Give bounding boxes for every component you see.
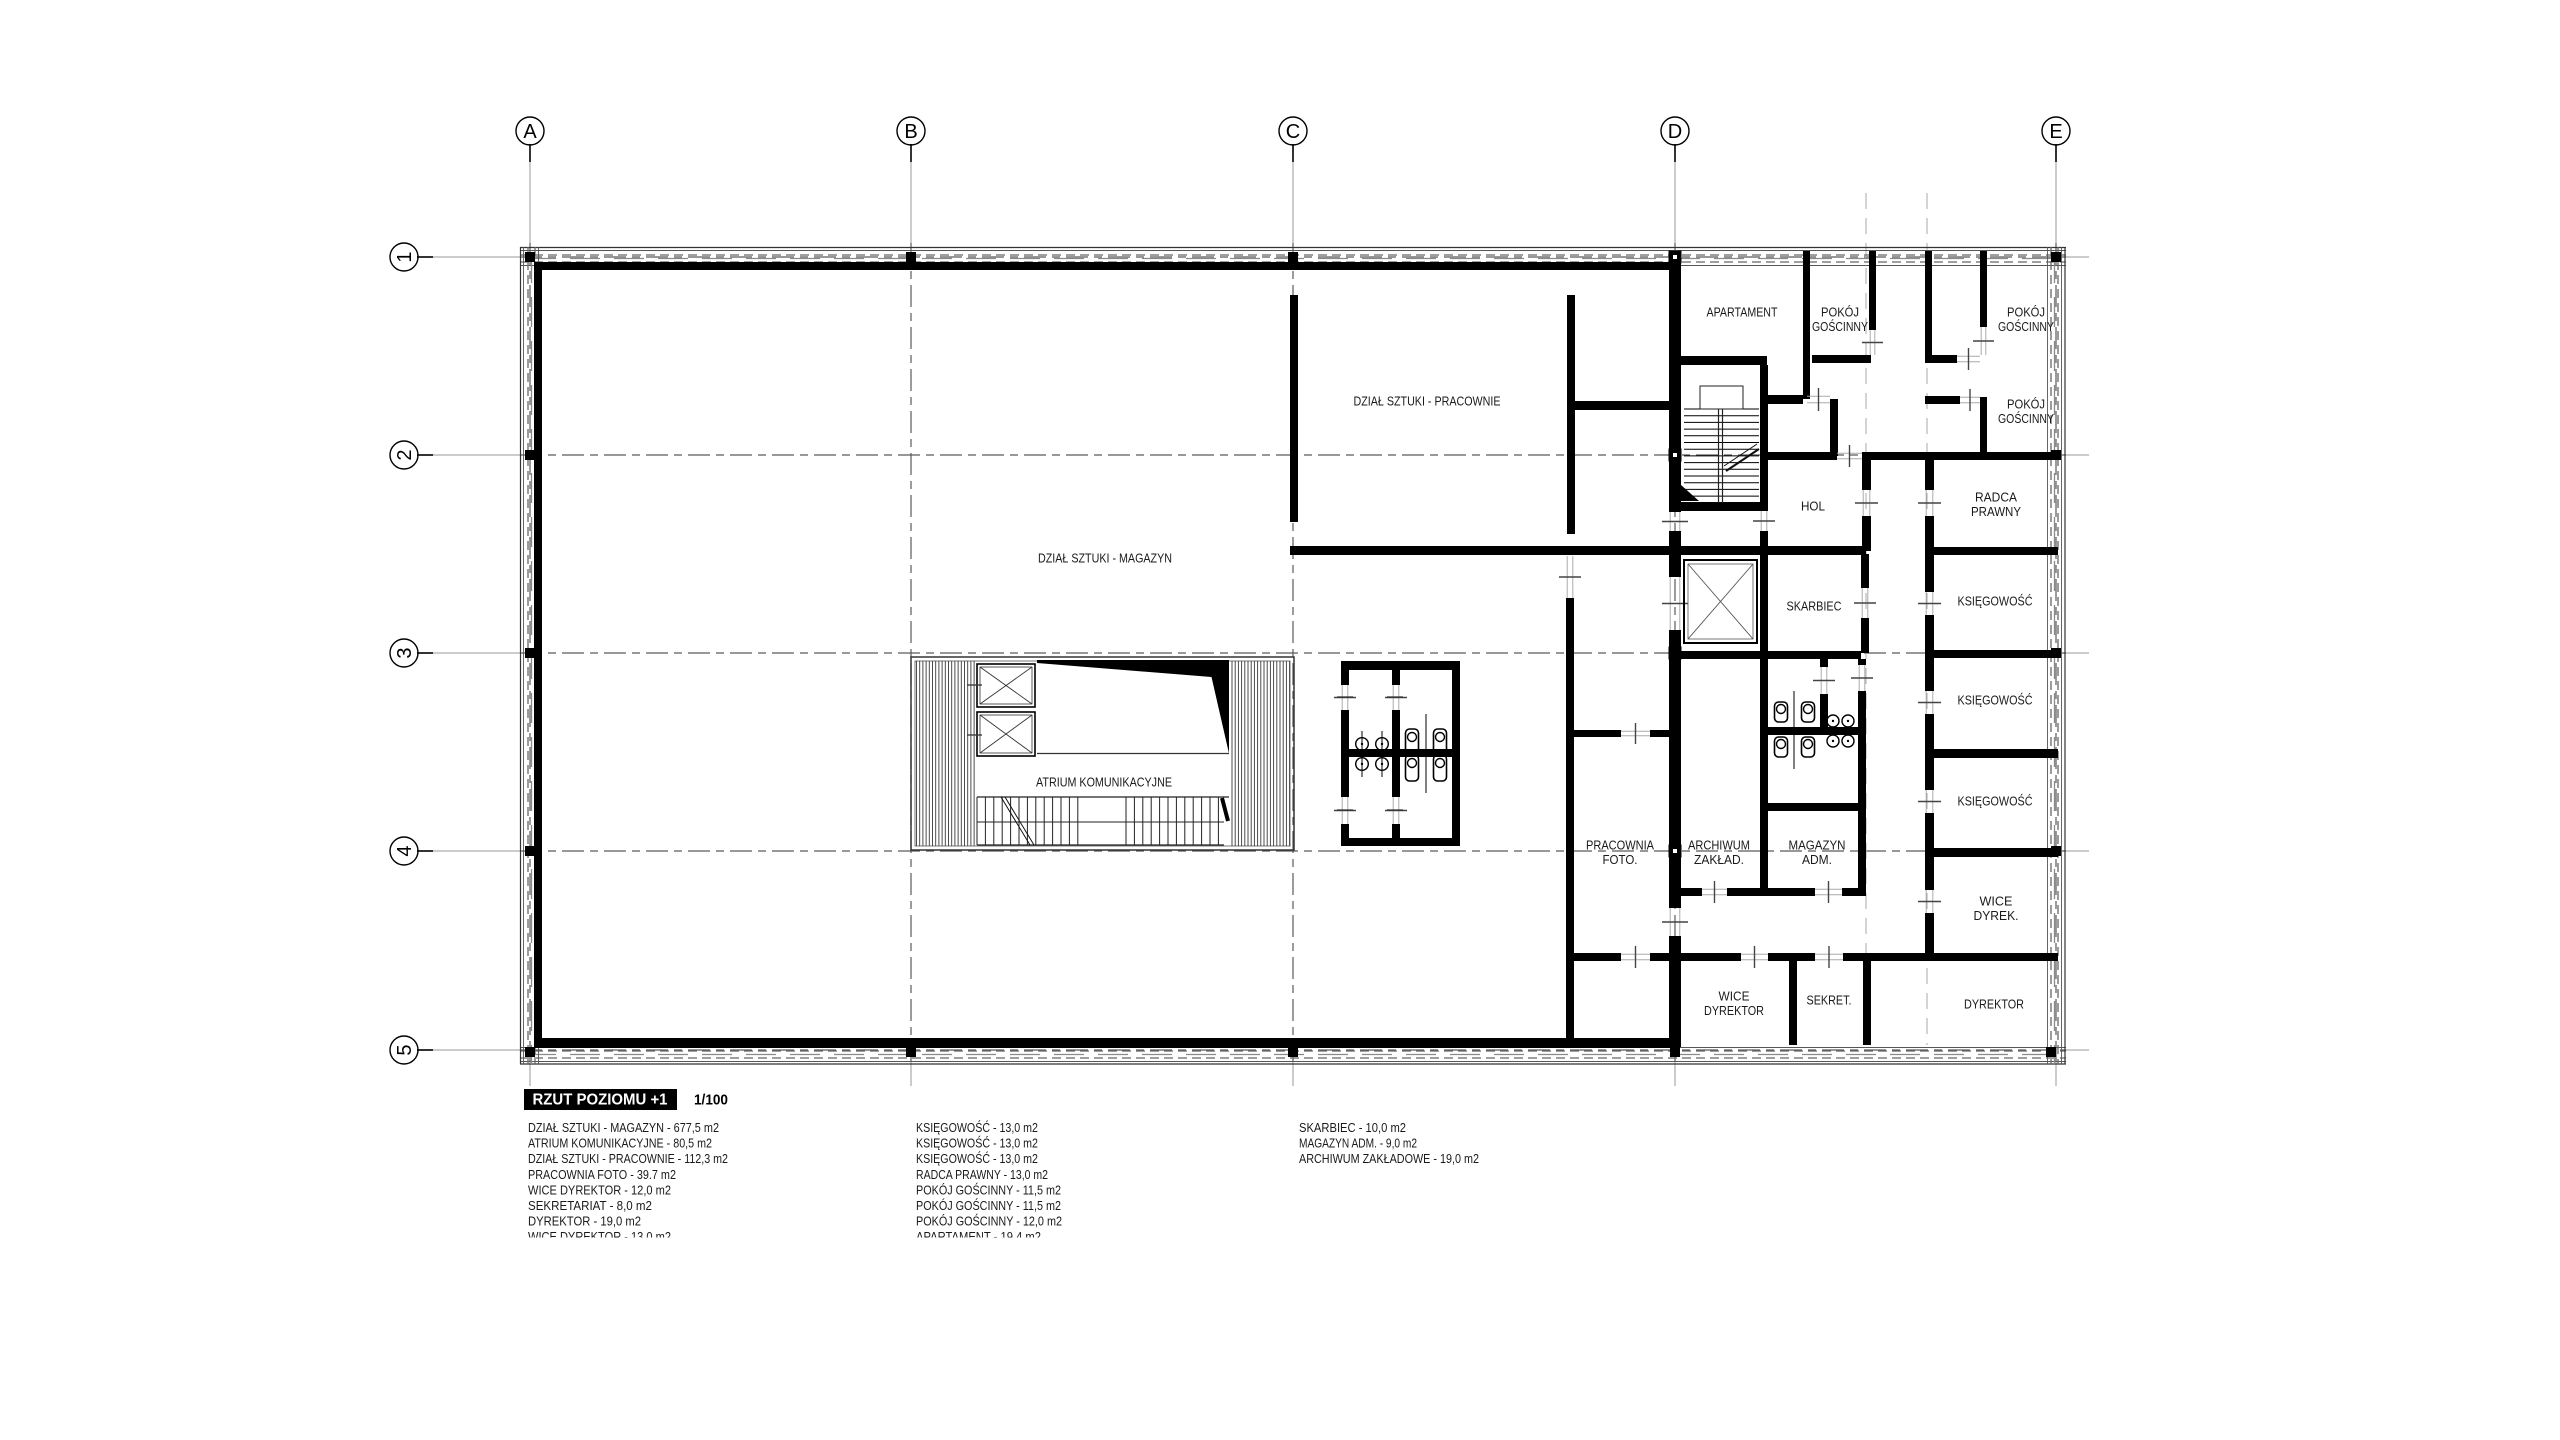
svg-text:4: 4 xyxy=(394,845,416,856)
svg-text:WICE: WICE xyxy=(1980,893,2013,908)
svg-text:ATRIUM KOMUNIKACYJNE: ATRIUM KOMUNIKACYJNE xyxy=(1036,775,1172,790)
svg-text:POKÓJ: POKÓJ xyxy=(2007,304,2045,319)
svg-text:POKÓJ GOŚCINNY - 11,5 m2: POKÓJ GOŚCINNY - 11,5 m2 xyxy=(916,1182,1061,1197)
svg-text:DYREKTOR: DYREKTOR xyxy=(1964,997,2024,1012)
svg-text:POKÓJ GOŚCINNY - 12,0 m2: POKÓJ GOŚCINNY - 12,0 m2 xyxy=(916,1214,1062,1229)
svg-text:3: 3 xyxy=(394,647,416,658)
svg-text:FOTO.: FOTO. xyxy=(1603,852,1638,867)
svg-text:C: C xyxy=(1286,121,1300,143)
svg-text:RZUT POZIOMU +1: RZUT POZIOMU +1 xyxy=(533,1092,668,1109)
svg-text:DYREK.: DYREK. xyxy=(1974,908,2019,923)
svg-text:SEKRETARIAT - 8,0 m2: SEKRETARIAT - 8,0 m2 xyxy=(528,1198,652,1213)
svg-text:DZIAŁ SZTUKI - PRACOWNIE: DZIAŁ SZTUKI - PRACOWNIE xyxy=(1354,394,1501,409)
svg-text:DZIAŁ SZTUKI - MAGAZYN - 677,5: DZIAŁ SZTUKI - MAGAZYN - 677,5 m2 xyxy=(528,1120,719,1135)
svg-text:DZIAŁ SZTUKI - PRACOWNIE - 112: DZIAŁ SZTUKI - PRACOWNIE - 112,3 m2 xyxy=(528,1151,728,1166)
svg-text:PRACOWNIA: PRACOWNIA xyxy=(1586,837,1654,852)
svg-text:B: B xyxy=(904,121,917,143)
svg-text:KSIĘGOWOŚĆ - 13,0 m2: KSIĘGOWOŚĆ - 13,0 m2 xyxy=(916,1120,1038,1135)
svg-text:5: 5 xyxy=(394,1044,416,1055)
svg-text:KSIĘGOWOŚĆ - 13,0 m2: KSIĘGOWOŚĆ - 13,0 m2 xyxy=(916,1136,1038,1151)
svg-text:GOŚCINNY: GOŚCINNY xyxy=(1812,319,1868,334)
svg-text:WICE: WICE xyxy=(1719,988,1750,1003)
svg-text:ARCHIWUM ZAKŁADOWE - 19,0 m2: ARCHIWUM ZAKŁADOWE - 19,0 m2 xyxy=(1299,1151,1479,1166)
svg-text:KSIĘGOWOŚĆ: KSIĘGOWOŚĆ xyxy=(1958,794,2033,809)
svg-text:2: 2 xyxy=(394,449,416,460)
svg-text:A: A xyxy=(523,121,537,143)
svg-text:APARTAMENT: APARTAMENT xyxy=(1707,305,1778,320)
svg-text:SKARBIEC: SKARBIEC xyxy=(1787,599,1842,614)
svg-text:GOŚCINNY: GOŚCINNY xyxy=(1998,411,2054,426)
svg-text:DYREKTOR - 19,0 m2: DYREKTOR - 19,0 m2 xyxy=(528,1214,641,1229)
svg-text:1/100: 1/100 xyxy=(694,1092,728,1109)
svg-text:POKÓJ: POKÓJ xyxy=(2007,396,2045,411)
svg-text:SKARBIEC - 10,0 m2: SKARBIEC - 10,0 m2 xyxy=(1299,1120,1406,1135)
svg-text:MAGAZYN: MAGAZYN xyxy=(1789,837,1846,852)
svg-text:RADCA: RADCA xyxy=(1975,489,2017,504)
svg-text:GOŚCINNY: GOŚCINNY xyxy=(1998,319,2054,334)
svg-text:ZAKŁAD.: ZAKŁAD. xyxy=(1694,852,1744,867)
svg-text:WICE DYREKTOR - 12,0 m2: WICE DYREKTOR - 12,0 m2 xyxy=(528,1182,671,1197)
svg-text:POKÓJ: POKÓJ xyxy=(1821,304,1859,319)
svg-text:DZIAŁ SZTUKI - MAGAZYN: DZIAŁ SZTUKI - MAGAZYN xyxy=(1038,551,1172,566)
svg-text:E: E xyxy=(2049,121,2062,143)
svg-text:HOL: HOL xyxy=(1801,499,1825,514)
svg-text:KSIĘGOWOŚĆ: KSIĘGOWOŚĆ xyxy=(1958,594,2033,609)
svg-text:SEKRET.: SEKRET. xyxy=(1807,993,1852,1008)
svg-text:ARCHIWUM: ARCHIWUM xyxy=(1688,837,1750,852)
svg-text:RADCA PRAWNY - 13,0 m2: RADCA PRAWNY - 13,0 m2 xyxy=(916,1167,1048,1182)
svg-text:D: D xyxy=(1668,121,1682,143)
svg-text:POKÓJ GOŚCINNY - 11,5 m2: POKÓJ GOŚCINNY - 11,5 m2 xyxy=(916,1198,1061,1213)
svg-text:DYREKTOR: DYREKTOR xyxy=(1704,1003,1764,1018)
svg-text:ADM.: ADM. xyxy=(1802,852,1832,867)
svg-text:KSIĘGOWOŚĆ - 13,0 m2: KSIĘGOWOŚĆ - 13,0 m2 xyxy=(916,1151,1038,1166)
svg-text:PRACOWNIA FOTO - 39.7 m2: PRACOWNIA FOTO - 39.7 m2 xyxy=(528,1167,676,1182)
svg-text:MAGAZYN ADM. - 9,0 m2: MAGAZYN ADM. - 9,0 m2 xyxy=(1299,1136,1417,1151)
svg-text:ATRIUM KOMUNIKACYJNE - 80,5 m2: ATRIUM KOMUNIKACYJNE - 80,5 m2 xyxy=(528,1136,712,1151)
svg-text:1: 1 xyxy=(394,251,416,262)
svg-text:PRAWNY: PRAWNY xyxy=(1971,504,2021,519)
svg-text:KSIĘGOWOŚĆ: KSIĘGOWOŚĆ xyxy=(1958,693,2033,708)
